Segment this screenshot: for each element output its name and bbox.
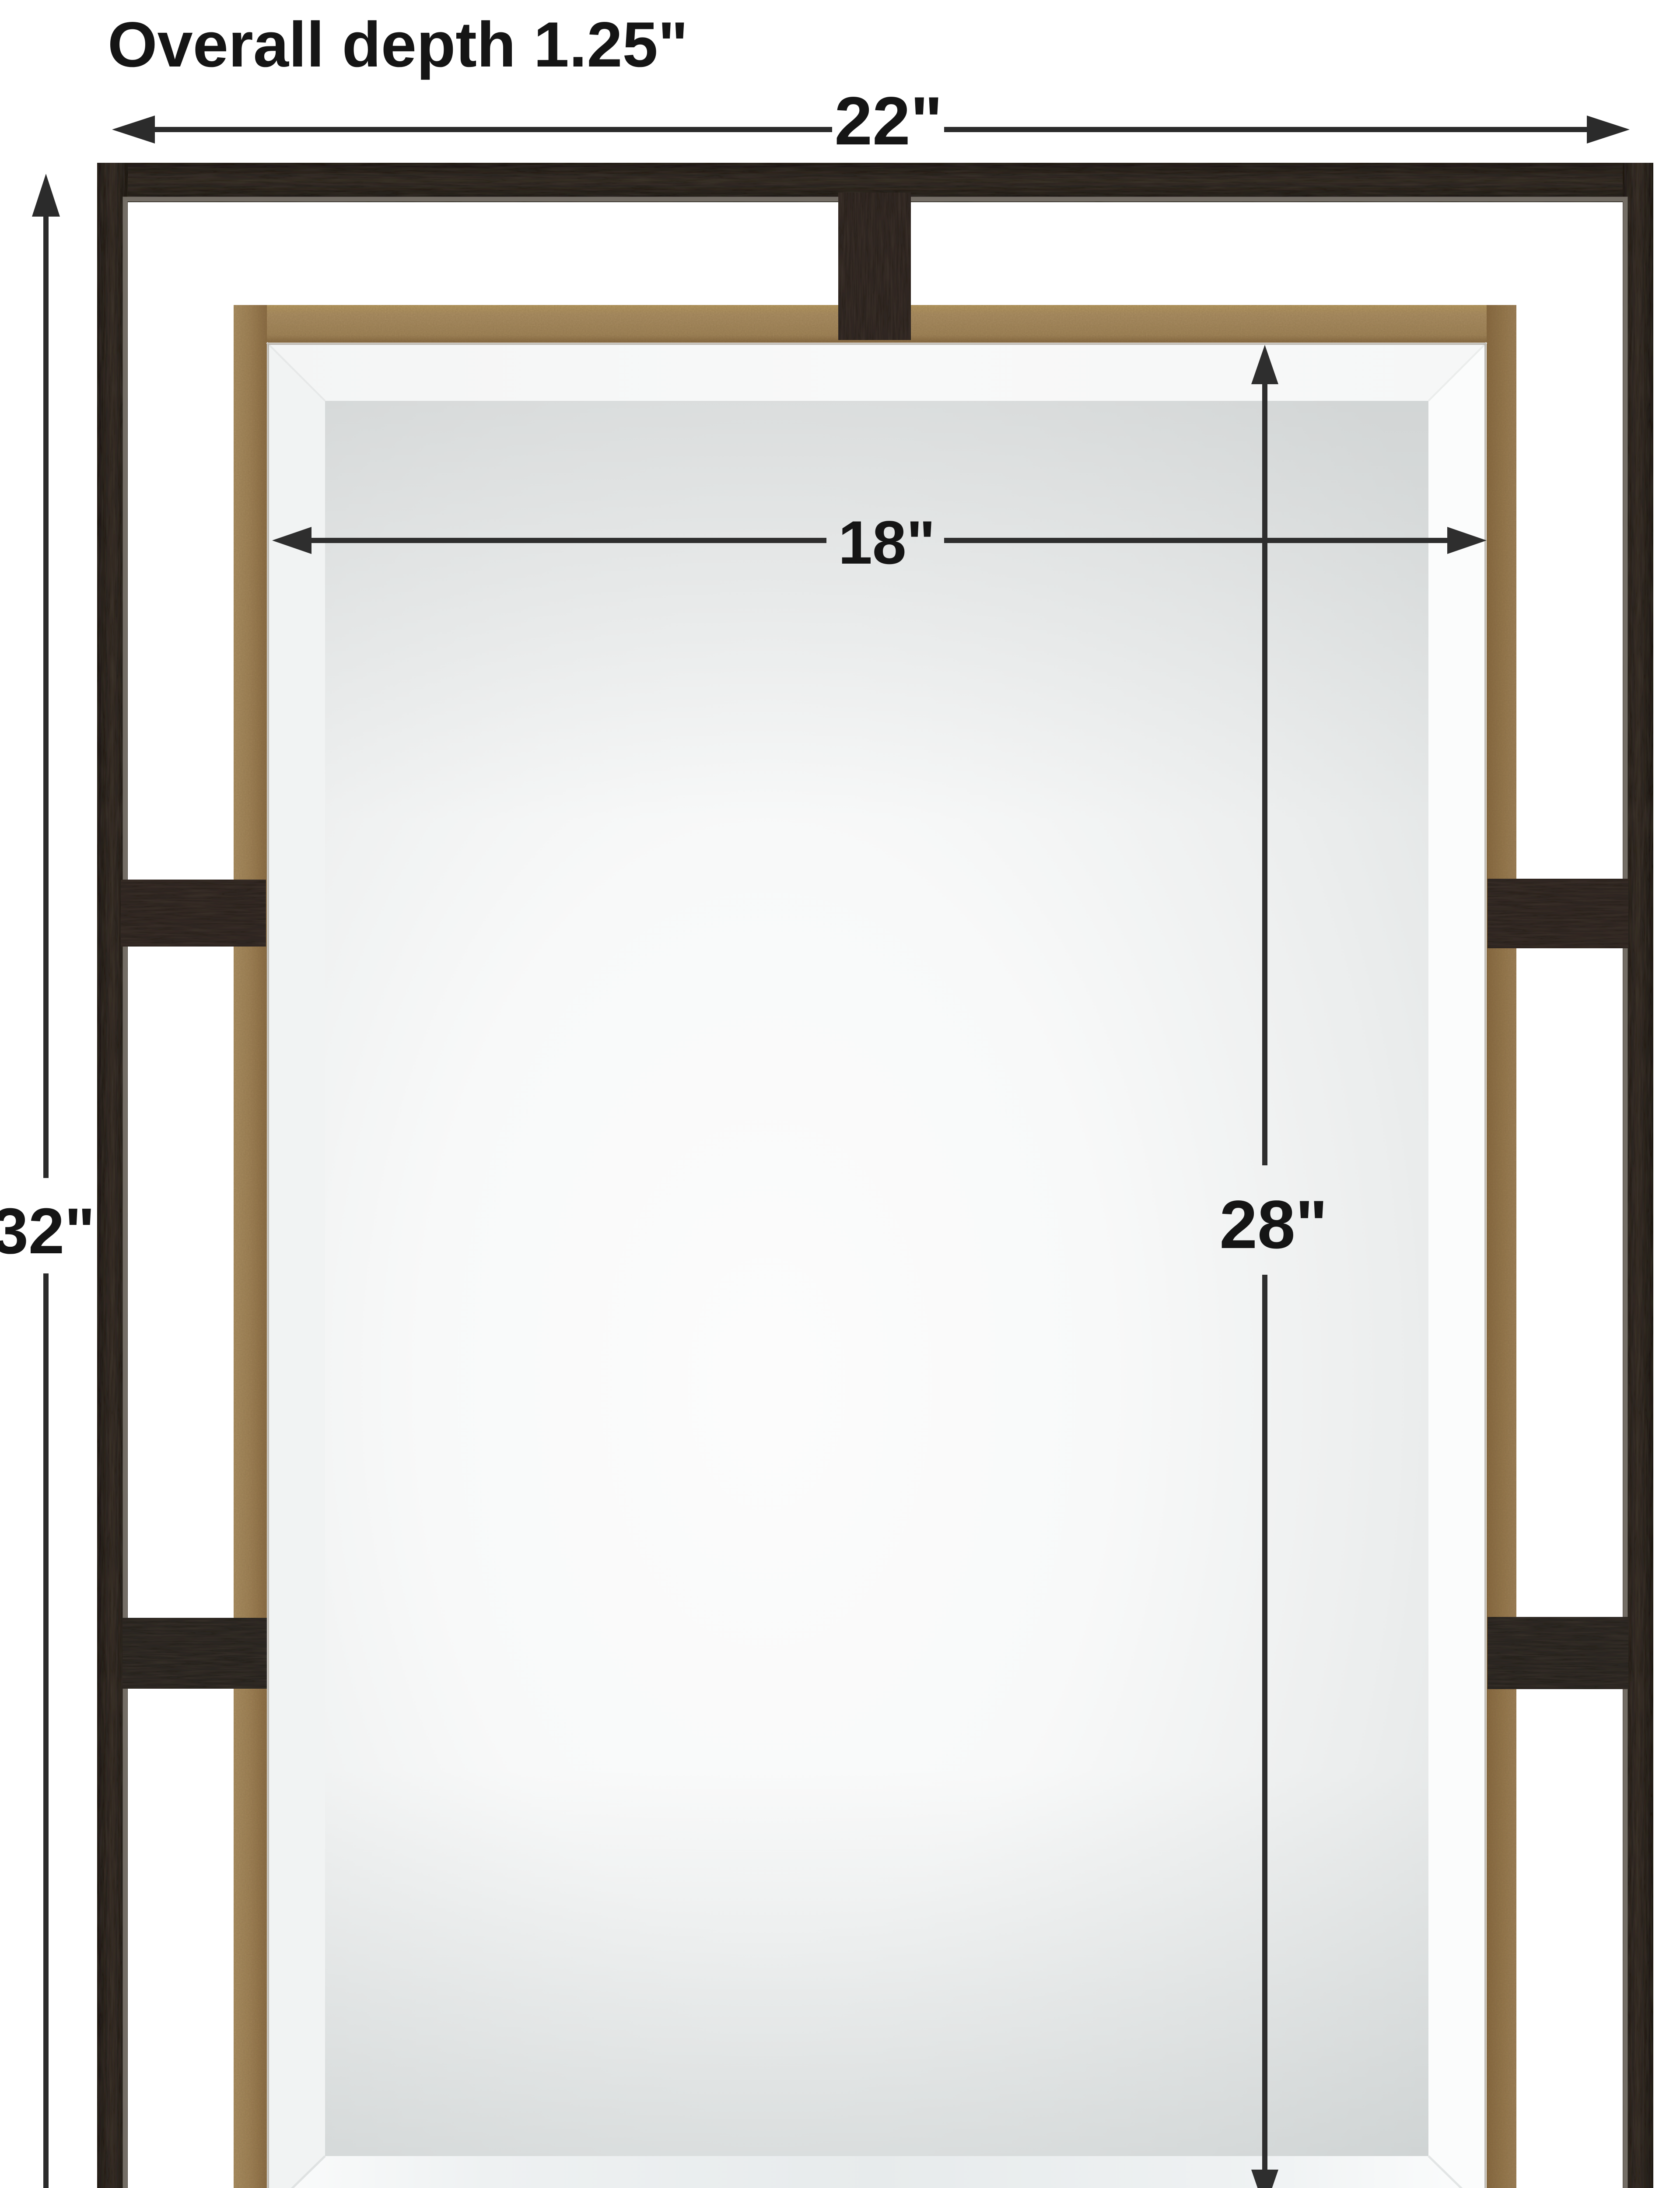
svg-text:18": 18" <box>838 508 935 577</box>
svg-text:Overall depth 1.25": Overall depth 1.25" <box>108 9 688 80</box>
svg-text:22": 22" <box>834 83 942 159</box>
svg-text:28": 28" <box>1219 1187 1327 1263</box>
svg-text:32": 32" <box>0 1195 95 1267</box>
